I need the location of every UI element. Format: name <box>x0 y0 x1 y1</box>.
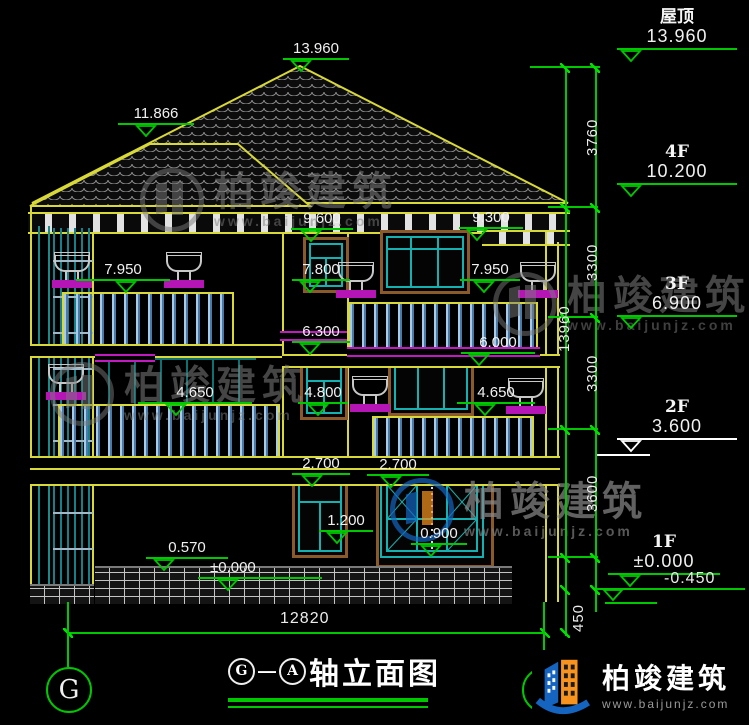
title-dash: — <box>258 661 276 682</box>
brand-url: www.baijunjz.com <box>602 697 730 711</box>
dim-3300a: 3300 <box>584 244 601 281</box>
elevation-triangle-icon <box>308 404 328 416</box>
plinth-brick-left <box>30 584 94 604</box>
brand-name: 柏竣建筑 <box>602 657 730 697</box>
brand-logo-icon <box>50 362 114 426</box>
floor-label-roof: 屋顶 13.960 <box>617 8 737 62</box>
elev-mark-band-right: 6.000 <box>461 335 535 366</box>
brand-logo-icon <box>532 650 594 718</box>
elevation-triangle-icon <box>469 354 489 366</box>
dim-3600: 3600 <box>584 475 601 512</box>
elevation-triangle-icon <box>166 404 186 416</box>
elevation-triangle-icon <box>620 575 640 587</box>
dim-tick <box>590 425 600 435</box>
elevation-triangle-icon <box>301 230 321 242</box>
watermark-brand: 柏竣建筑 <box>464 481 648 523</box>
axis-extension-left <box>67 602 69 667</box>
floor-label-3f: 3F 6.900 <box>617 275 737 329</box>
urn-bowl <box>352 376 388 396</box>
axis-bubble-g: G <box>46 667 92 713</box>
elevation-triangle-icon <box>300 343 320 355</box>
window-mullion <box>410 238 412 286</box>
wall-line <box>30 206 32 602</box>
elevation-triangle-icon <box>603 589 623 601</box>
dim-tick <box>560 63 570 73</box>
elev-mark-balcony2-right: 4.650 <box>457 385 535 416</box>
dim-tick <box>540 628 550 638</box>
elevation-drawing: 柏竣建筑 www.baijunjz.com 柏竣建筑 www.baijunjz.… <box>0 0 749 725</box>
elevation-triangle-icon <box>621 185 641 197</box>
dim-tick <box>560 553 570 563</box>
elevation-triangle-icon <box>136 125 156 137</box>
drawing-title: G — A 轴立面图 <box>228 649 428 708</box>
balcony-3f-left <box>62 292 234 352</box>
elevation-triangle-icon <box>381 476 401 488</box>
dim-tick <box>590 585 600 595</box>
title-underline <box>228 698 428 702</box>
window-mullion <box>388 248 462 250</box>
dim-tick <box>590 203 600 213</box>
elevation-triangle-icon <box>327 532 347 544</box>
elev-mark-eave-right: 9.300 <box>459 210 523 241</box>
elevation-triangle-icon <box>474 281 494 293</box>
elev-mark-roof-apex: 13.960 <box>283 41 349 72</box>
title-underline-thin <box>228 706 428 708</box>
elev-mark-window1-small: 1.200 <box>319 513 373 544</box>
urn-stem <box>177 272 191 280</box>
elev-mark-slab-left: 2.700 <box>292 456 350 487</box>
dim-450: 450 <box>570 604 587 632</box>
window-3f-wide <box>380 230 470 294</box>
dim-tick <box>560 425 570 435</box>
dim-tick <box>560 585 570 595</box>
bottom-dim-line <box>68 632 545 634</box>
elev-mark-ground: ±0.000 <box>198 560 322 591</box>
elevation-triangle-icon <box>475 404 495 416</box>
floor-label-4f: 4F 10.200 <box>617 143 737 197</box>
elev-mark-ridge: 11.866 <box>118 106 194 137</box>
elevation-triangle-icon <box>621 317 641 329</box>
elevation-triangle-icon <box>300 281 320 293</box>
elev-mark-balcony3-right: 7.950 <box>460 262 520 293</box>
elev-mark-window2-mid: 4.800 <box>298 385 348 416</box>
elev-mark-balcony2-left: 4.650 <box>138 385 252 416</box>
below-ground-value: -0.450 <box>664 570 715 588</box>
floor-label-2f: 2F 3.600 <box>617 398 737 452</box>
elevation-triangle-icon <box>291 60 311 72</box>
dim-tick <box>590 63 600 73</box>
elevation-triangle-icon <box>621 50 641 62</box>
window-mullion <box>437 238 439 286</box>
magenta-band-small <box>95 354 155 362</box>
urn-bowl <box>166 252 202 272</box>
title-text: 轴立面图 <box>309 649 441 693</box>
elev-mark-window1-large: 0.900 <box>411 526 467 557</box>
dim-total-13960: 13960 <box>556 305 573 352</box>
level-line <box>605 602 657 604</box>
brand-logo-icon <box>140 168 204 232</box>
watermark: 柏竣建筑 www.baijunjz.com <box>140 168 398 232</box>
floor-slab-3f-left <box>30 344 282 358</box>
dim-tick <box>560 628 570 638</box>
elevation-triangle-icon <box>621 440 641 452</box>
dim-tick <box>590 553 600 563</box>
window-frame <box>386 236 464 288</box>
elevation-triangle-icon <box>116 281 136 293</box>
dim-3300b: 3300 <box>584 355 601 392</box>
dim-tick <box>560 203 570 213</box>
elevation-triangle-icon <box>421 545 441 557</box>
dim-tick <box>590 313 600 323</box>
urn-stem <box>349 282 363 290</box>
watermark-brand: 柏竣建筑 <box>214 171 398 213</box>
elev-mark-window3-mid: 7.800 <box>292 262 350 293</box>
urn-base <box>350 404 390 412</box>
elevation-triangle-icon <box>302 475 322 487</box>
overall-width-dim: 12820 <box>280 610 330 628</box>
planter-urn <box>166 252 202 294</box>
title-axis-g: G <box>228 658 255 685</box>
dim-3760: 3760 <box>584 119 601 156</box>
elev-mark-eave-left: 9.600 <box>291 211 353 242</box>
elev-mark-balcony3-left: 7.950 <box>76 262 170 293</box>
elevation-triangle-icon <box>467 229 487 241</box>
wall-line <box>282 232 284 462</box>
elev-mark-band-left: 6.300 <box>292 324 350 355</box>
level-line <box>595 454 650 456</box>
drain-pipe <box>38 226 50 600</box>
title-axis-a: A <box>279 658 306 685</box>
elevation-triangle-icon <box>154 559 174 571</box>
elev-mark-slab-right: 2.700 <box>367 457 429 488</box>
urn-base <box>164 280 204 288</box>
planter-urn <box>352 376 388 418</box>
elevation-triangle-icon <box>218 579 238 591</box>
brand-logo: 柏竣建筑 www.baijunjz.com <box>532 650 730 718</box>
urn-stem <box>363 396 377 404</box>
